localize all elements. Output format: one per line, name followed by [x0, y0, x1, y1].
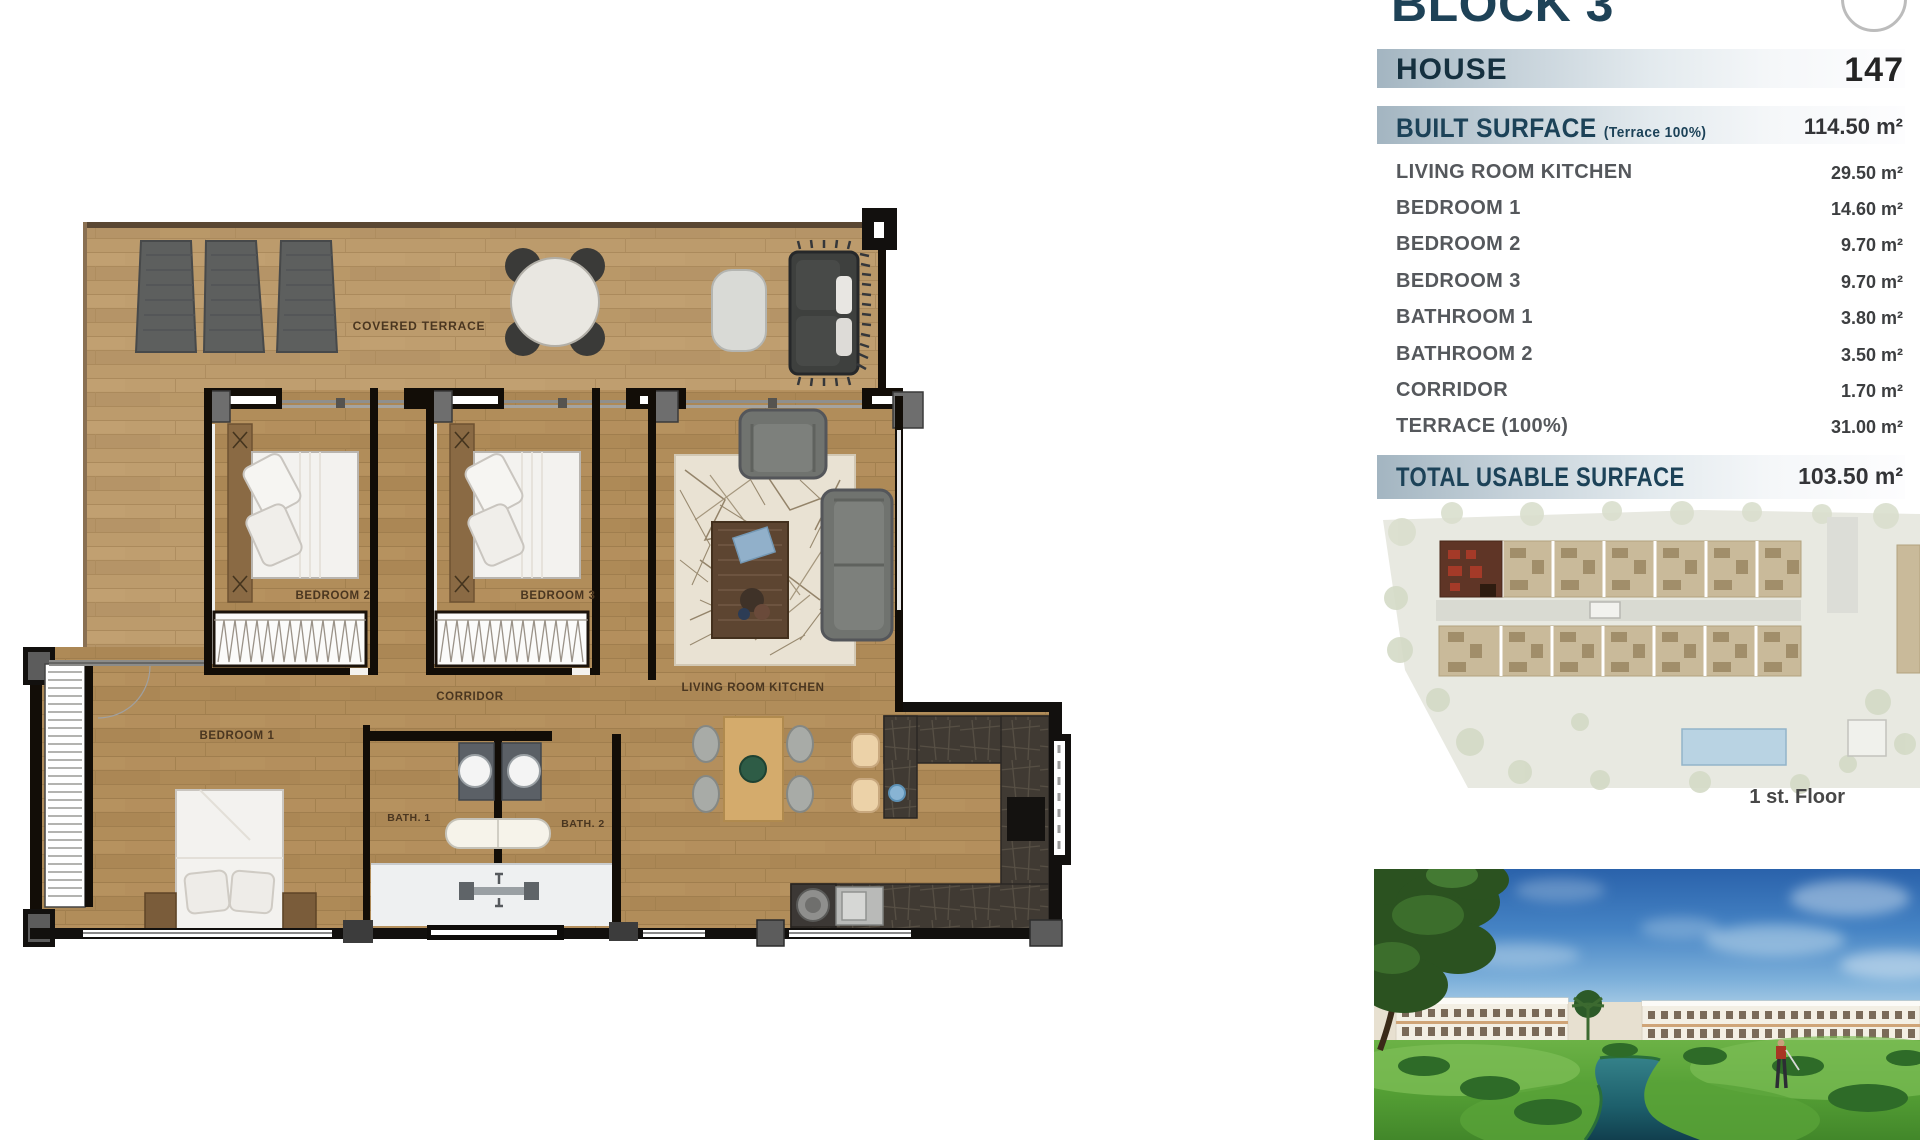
- svg-text:BATH. 2: BATH. 2: [561, 818, 605, 830]
- svg-text:LIVING ROOM KITCHEN: LIVING ROOM KITCHEN: [681, 682, 824, 694]
- svg-text:BATH. 1: BATH. 1: [387, 812, 431, 824]
- svg-text:CORRIDOR: CORRIDOR: [436, 691, 504, 703]
- svg-text:BEDROOM 1: BEDROOM 1: [199, 730, 274, 742]
- svg-text:BEDROOM 3: BEDROOM 3: [520, 590, 595, 602]
- svg-text:1 st. Floor: 1 st. Floor: [1749, 786, 1845, 808]
- svg-text:BEDROOM 2: BEDROOM 2: [295, 590, 370, 602]
- svg-text:COVERED TERRACE: COVERED TERRACE: [353, 319, 486, 333]
